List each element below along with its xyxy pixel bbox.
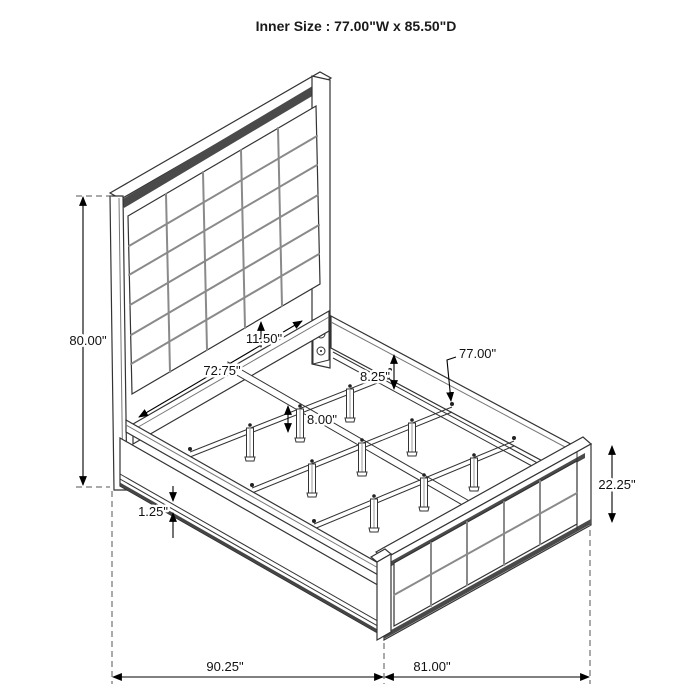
dim-overall-depth-label: 90.25" xyxy=(206,659,244,674)
dim-panel-gap: 11.50" xyxy=(246,322,283,347)
dim-leg-height-label: 8.00" xyxy=(307,412,337,427)
dim-headboard-span-label: 72.75" xyxy=(203,363,241,378)
dim-panel-gap-label: 11.50" xyxy=(246,331,283,346)
diagram-canvas: Inner Size : 77.00"W x 85.50"D xyxy=(0,0,700,700)
footboard-left-post xyxy=(377,554,391,640)
dim-rail-height-label: 8.25" xyxy=(360,369,390,384)
dim-headboard-height-label: 80.00" xyxy=(69,333,107,348)
dim-headboard-height: 80.00" xyxy=(69,196,116,487)
diagram-title: Inner Size : 77.00"W x 85.50"D xyxy=(256,18,457,34)
dim-overall-width: 81.00" xyxy=(385,659,589,677)
dim-overall-depth: 90.25" xyxy=(113,659,383,677)
dim-inner-width-label: 77.00" xyxy=(459,346,497,361)
dim-footboard-height: 22.25" xyxy=(598,446,636,522)
bed-dimension-diagram: Inner Size : 77.00"W x 85.50"D xyxy=(0,0,700,700)
far-side-rail xyxy=(331,316,580,481)
dim-rail-lip-label: 1.25" xyxy=(138,504,168,519)
dim-footboard-height-label: 22.25" xyxy=(598,477,636,492)
dim-overall-width-label: 81.00" xyxy=(413,659,451,674)
